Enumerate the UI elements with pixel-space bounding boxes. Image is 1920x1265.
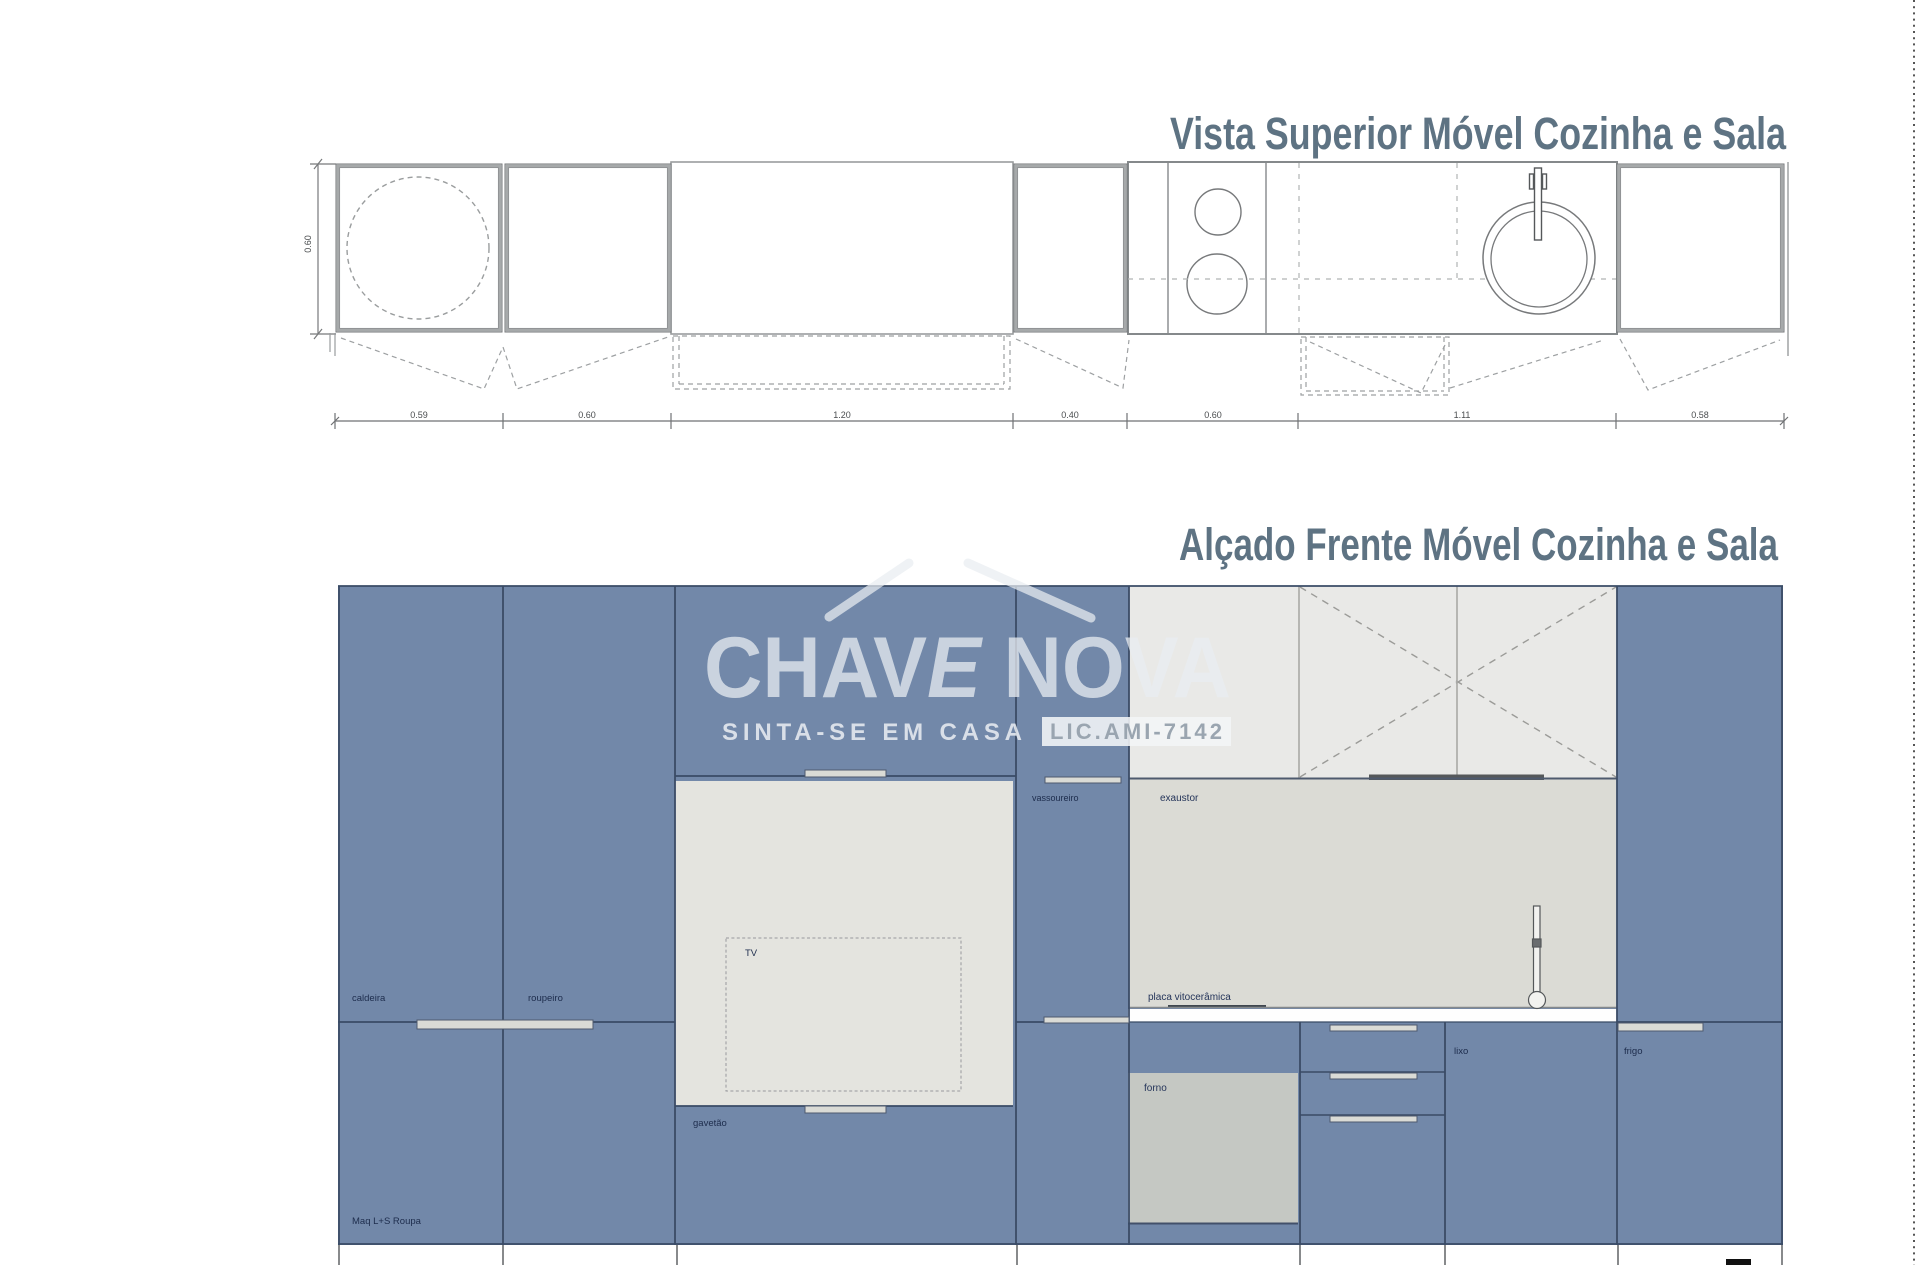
svg-text:LIC.AMI-7142: LIC.AMI-7142 bbox=[1050, 719, 1222, 744]
svg-text:1.20: 1.20 bbox=[833, 410, 851, 420]
svg-text:SINTA-SE EM CASA: SINTA-SE EM CASA bbox=[722, 719, 1022, 746]
svg-text:frigo: frigo bbox=[1624, 1046, 1642, 1057]
svg-text:forno: forno bbox=[1144, 1083, 1167, 1094]
svg-text:1.11: 1.11 bbox=[1454, 410, 1471, 420]
svg-text:exaustor: exaustor bbox=[1160, 793, 1199, 804]
svg-text:gavetão: gavetão bbox=[693, 1118, 727, 1129]
svg-text:0.59: 0.59 bbox=[410, 410, 428, 420]
svg-text:CHAVE NOVA: CHAVE NOVA bbox=[704, 620, 1231, 716]
svg-text:Alçado Frente Móvel Cozinha e: Alçado Frente Móvel Cozinha e Sala bbox=[1179, 519, 1779, 570]
svg-text:lixo: lixo bbox=[1454, 1046, 1468, 1057]
svg-text:roupeiro: roupeiro bbox=[528, 993, 563, 1004]
svg-text:Maq L+S Roupa: Maq L+S Roupa bbox=[352, 1216, 422, 1227]
svg-text:0.60: 0.60 bbox=[1204, 410, 1222, 420]
svg-text:vassoureiro: vassoureiro bbox=[1032, 793, 1079, 803]
svg-text:0.60: 0.60 bbox=[578, 410, 596, 420]
svg-text:0.58: 0.58 bbox=[1691, 410, 1709, 420]
svg-text:0.40: 0.40 bbox=[1061, 410, 1079, 420]
svg-text:caldeira: caldeira bbox=[352, 993, 386, 1004]
svg-text:placa vitocerâmica: placa vitocerâmica bbox=[1148, 992, 1231, 1003]
svg-text:0.60: 0.60 bbox=[303, 235, 313, 253]
svg-text:TV: TV bbox=[745, 948, 758, 959]
svg-text:Vista Superior Móvel Cozinha e: Vista Superior Móvel Cozinha e Sala bbox=[1170, 108, 1787, 159]
